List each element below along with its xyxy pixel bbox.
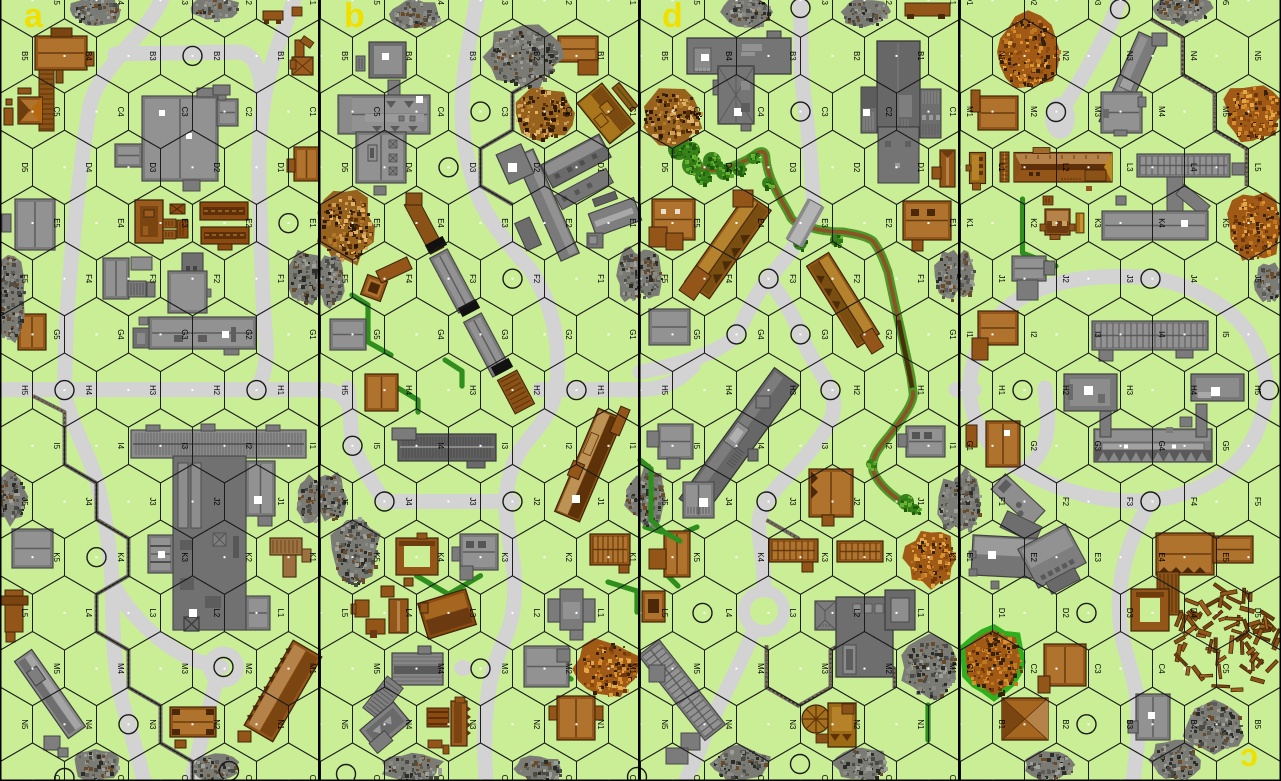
svg-text:M5: M5 (1221, 106, 1230, 117)
svg-text:G2: G2 (564, 329, 573, 339)
svg-text:H3: H3 (1125, 385, 1134, 395)
svg-text:E1: E1 (965, 552, 974, 562)
svg-text:A2: A2 (244, 0, 253, 5)
svg-text:J3: J3 (468, 497, 477, 505)
svg-text:C5: C5 (372, 107, 381, 118)
svg-text:J5: J5 (340, 497, 349, 506)
svg-text:E4: E4 (116, 218, 125, 228)
svg-text:K5: K5 (372, 552, 381, 562)
svg-text:F5: F5 (20, 274, 29, 284)
svg-text:O1: O1 (965, 0, 974, 5)
svg-text:C3: C3 (820, 107, 829, 117)
svg-text:D2: D2 (532, 162, 541, 172)
svg-text:B3: B3 (1125, 720, 1134, 730)
svg-text:D3: D3 (1125, 608, 1134, 618)
svg-text:E3: E3 (820, 218, 829, 228)
svg-text:B3: B3 (148, 51, 157, 61)
svg-text:N3: N3 (148, 719, 157, 729)
svg-text:D1: D1 (596, 162, 605, 172)
svg-text:E4: E4 (436, 218, 445, 228)
svg-text:H1: H1 (276, 385, 285, 395)
svg-text:I4: I4 (116, 443, 125, 450)
svg-text:I3: I3 (1093, 331, 1102, 338)
svg-text:N1: N1 (596, 719, 605, 729)
svg-text:K2: K2 (564, 552, 573, 562)
svg-text:J5: J5 (1253, 275, 1262, 284)
svg-text:C3: C3 (180, 107, 189, 117)
svg-text:K3: K3 (500, 552, 509, 562)
svg-text:E5: E5 (372, 218, 381, 228)
svg-text:F3: F3 (148, 274, 157, 283)
svg-text:E3: E3 (1093, 552, 1102, 562)
svg-text:G5: G5 (1221, 441, 1230, 452)
svg-text:K5: K5 (52, 552, 61, 562)
svg-text:J5: J5 (20, 497, 29, 506)
svg-text:K5: K5 (692, 552, 701, 562)
svg-text:L5: L5 (340, 609, 349, 618)
svg-text:C2: C2 (244, 107, 253, 117)
svg-text:E2: E2 (564, 218, 573, 228)
svg-text:C2: C2 (1029, 664, 1038, 674)
svg-text:L1: L1 (916, 609, 925, 618)
svg-text:B2: B2 (1061, 720, 1070, 730)
svg-text:D2: D2 (212, 162, 221, 172)
svg-text:B2: B2 (532, 51, 541, 61)
svg-text:N1: N1 (916, 719, 925, 729)
svg-text:E4: E4 (756, 218, 765, 228)
svg-text:A1: A1 (628, 0, 637, 5)
svg-text:N5: N5 (1253, 51, 1262, 62)
svg-text:N4: N4 (1189, 51, 1198, 62)
svg-text:M5: M5 (692, 663, 701, 674)
svg-text:L4: L4 (404, 609, 413, 618)
svg-text:H2: H2 (852, 385, 861, 395)
svg-text:F2: F2 (212, 274, 221, 283)
svg-text:B1: B1 (276, 51, 285, 61)
svg-text:K4: K4 (436, 552, 445, 562)
svg-text:D4: D4 (404, 162, 413, 173)
svg-text:M1: M1 (948, 663, 957, 674)
svg-text:d: d (662, 0, 683, 35)
svg-text:M2: M2 (1029, 106, 1038, 117)
svg-text:I1: I1 (628, 443, 637, 450)
svg-text:M5: M5 (52, 663, 61, 674)
svg-text:I1: I1 (948, 443, 957, 450)
svg-text:F1: F1 (596, 274, 605, 283)
svg-text:G5: G5 (372, 329, 381, 340)
svg-text:L2: L2 (1061, 163, 1070, 172)
svg-text:B2: B2 (212, 51, 221, 61)
svg-text:N4: N4 (404, 719, 413, 730)
svg-text:H3: H3 (148, 385, 157, 395)
svg-text:I3: I3 (180, 443, 189, 450)
svg-text:I5: I5 (1221, 331, 1230, 338)
svg-text:H3: H3 (468, 385, 477, 395)
svg-text:H5: H5 (20, 385, 29, 396)
svg-text:L2: L2 (852, 609, 861, 618)
svg-text:L3: L3 (788, 609, 797, 618)
svg-text:J2: J2 (852, 497, 861, 505)
svg-text:L3: L3 (148, 609, 157, 618)
svg-text:D2: D2 (852, 162, 861, 172)
svg-text:F4: F4 (84, 274, 93, 284)
svg-text:G4: G4 (1157, 441, 1166, 452)
svg-text:M1: M1 (308, 663, 317, 674)
svg-text:I1: I1 (308, 443, 317, 450)
svg-text:L3: L3 (468, 609, 477, 618)
svg-text:F5: F5 (1253, 497, 1262, 507)
svg-text:F4: F4 (1189, 497, 1198, 507)
svg-text:L3: L3 (1125, 163, 1134, 172)
svg-text:D4: D4 (1189, 608, 1198, 619)
svg-text:G3: G3 (180, 329, 189, 339)
svg-text:F1: F1 (997, 497, 1006, 506)
svg-text:H4: H4 (724, 385, 733, 396)
svg-text:C4: C4 (1157, 664, 1166, 675)
svg-text:E1: E1 (628, 218, 637, 228)
svg-text:E2: E2 (1029, 552, 1038, 562)
svg-text:D5: D5 (660, 162, 669, 173)
svg-text:K2: K2 (884, 552, 893, 562)
svg-text:N5: N5 (660, 719, 669, 730)
svg-text:O4: O4 (1157, 0, 1166, 6)
svg-text:L4: L4 (724, 609, 733, 618)
svg-text:L1: L1 (596, 609, 605, 618)
svg-text:B4: B4 (84, 51, 93, 61)
svg-text:D1: D1 (276, 162, 285, 172)
svg-text:F2: F2 (532, 274, 541, 283)
svg-text:B1: B1 (997, 720, 1006, 730)
svg-text:M1: M1 (628, 663, 637, 674)
svg-text:G1: G1 (308, 329, 317, 339)
svg-text:E4: E4 (1157, 552, 1166, 562)
svg-text:D3: D3 (468, 162, 477, 172)
svg-text:N1: N1 (997, 51, 1006, 61)
svg-text:C4: C4 (116, 107, 125, 118)
svg-text:N3: N3 (788, 719, 797, 729)
svg-text:N1: N1 (276, 719, 285, 729)
svg-text:M3: M3 (820, 663, 829, 674)
svg-text:E5: E5 (1221, 552, 1230, 562)
svg-text:H5: H5 (340, 385, 349, 396)
svg-text:J1: J1 (997, 275, 1006, 283)
svg-text:a: a (24, 0, 44, 35)
svg-text:H4: H4 (404, 385, 413, 396)
svg-text:K4: K4 (756, 552, 765, 562)
svg-text:J1: J1 (916, 497, 925, 505)
svg-text:H2: H2 (532, 385, 541, 395)
svg-text:L2: L2 (532, 609, 541, 618)
svg-text:D3: D3 (788, 162, 797, 172)
svg-text:I2: I2 (244, 443, 253, 450)
svg-text:J4: J4 (1189, 275, 1198, 284)
svg-text:E3: E3 (500, 218, 509, 228)
svg-text:B5: B5 (1253, 720, 1262, 730)
svg-text:C1: C1 (628, 107, 637, 117)
svg-text:K5: K5 (1221, 218, 1230, 228)
svg-text:E5: E5 (692, 218, 701, 228)
svg-text:I1: I1 (965, 331, 974, 338)
svg-text:H2: H2 (1061, 385, 1070, 395)
svg-text:C5: C5 (1221, 664, 1230, 675)
svg-text:I4: I4 (1157, 331, 1166, 338)
svg-text:M4: M4 (116, 663, 125, 674)
svg-text:E5: E5 (52, 218, 61, 228)
svg-text:E2: E2 (244, 218, 253, 228)
svg-text:F4: F4 (404, 274, 413, 284)
svg-text:C1: C1 (308, 107, 317, 117)
svg-text:G5: G5 (52, 329, 61, 340)
svg-text:A5: A5 (692, 0, 701, 6)
svg-text:O2: O2 (1029, 0, 1038, 5)
svg-text:M3: M3 (500, 663, 509, 674)
svg-text:B2: B2 (852, 51, 861, 61)
svg-text:H3: H3 (788, 385, 797, 395)
svg-text:D2: D2 (1061, 608, 1070, 618)
svg-text:E1: E1 (948, 218, 957, 228)
svg-text:A3: A3 (500, 0, 509, 5)
svg-text:N2: N2 (1061, 51, 1070, 61)
svg-text:F1: F1 (276, 274, 285, 283)
svg-text:L5: L5 (1253, 163, 1262, 172)
svg-text:J2: J2 (212, 497, 221, 505)
svg-text:N2: N2 (852, 719, 861, 729)
svg-text:L4: L4 (1189, 163, 1198, 172)
svg-text:C3: C3 (1093, 664, 1102, 674)
svg-text:K4: K4 (1157, 218, 1166, 228)
svg-text:J3: J3 (1125, 275, 1134, 283)
svg-text:G4: G4 (756, 329, 765, 340)
svg-text:D4: D4 (724, 162, 733, 173)
svg-text:A5: A5 (372, 0, 381, 6)
svg-text:D1: D1 (916, 162, 925, 172)
svg-text:K4: K4 (116, 552, 125, 562)
svg-text:C1: C1 (965, 664, 974, 674)
svg-text:H4: H4 (1189, 385, 1198, 396)
svg-text:C2: C2 (884, 107, 893, 117)
svg-text:K1: K1 (308, 552, 317, 562)
svg-text:D4: D4 (84, 162, 93, 173)
svg-text:H2: H2 (212, 385, 221, 395)
svg-text:I5: I5 (692, 443, 701, 450)
svg-text:N5: N5 (20, 719, 29, 730)
svg-text:G2: G2 (244, 329, 253, 339)
svg-text:K2: K2 (244, 552, 253, 562)
svg-text:G3: G3 (500, 329, 509, 339)
svg-text:L4: L4 (84, 609, 93, 618)
svg-text:C5: C5 (692, 107, 701, 118)
svg-text:F3: F3 (788, 274, 797, 283)
svg-text:A3: A3 (820, 0, 829, 5)
svg-text:F4: F4 (724, 274, 733, 284)
svg-text:A1: A1 (308, 0, 317, 5)
svg-text:F3: F3 (1125, 497, 1134, 506)
svg-text:N4: N4 (84, 719, 93, 730)
svg-text:C1: C1 (948, 107, 957, 117)
svg-text:A3: A3 (180, 0, 189, 5)
svg-text:M2: M2 (244, 663, 253, 674)
svg-text:c: c (1240, 742, 1258, 778)
svg-text:I5: I5 (52, 443, 61, 450)
svg-text:M4: M4 (1157, 106, 1166, 117)
svg-text:b: b (344, 0, 365, 35)
svg-text:O5: O5 (1221, 0, 1230, 6)
svg-text:G1: G1 (628, 329, 637, 339)
svg-text:A5: A5 (52, 0, 61, 6)
svg-text:D1: D1 (997, 608, 1006, 618)
svg-text:G3: G3 (1093, 441, 1102, 451)
svg-text:M5: M5 (372, 663, 381, 674)
svg-text:E3: E3 (180, 218, 189, 228)
svg-text:A2: A2 (884, 0, 893, 5)
svg-text:A4: A4 (116, 0, 125, 6)
svg-text:O3: O3 (1093, 0, 1102, 5)
svg-text:K1: K1 (948, 552, 957, 562)
svg-text:K2: K2 (1029, 218, 1038, 228)
svg-text:H1: H1 (596, 385, 605, 395)
svg-text:L5: L5 (660, 609, 669, 618)
svg-text:K3: K3 (180, 552, 189, 562)
svg-text:L1: L1 (997, 163, 1006, 172)
svg-text:G3: G3 (820, 329, 829, 339)
svg-text:B1: B1 (916, 51, 925, 61)
svg-text:J4: J4 (84, 497, 93, 506)
svg-text:A1: A1 (948, 0, 957, 5)
svg-text:B4: B4 (404, 51, 413, 61)
svg-text:C2: C2 (564, 107, 573, 117)
svg-text:A2: A2 (564, 0, 573, 5)
svg-text:J4: J4 (404, 497, 413, 506)
svg-text:C3: C3 (500, 107, 509, 117)
svg-text:J1: J1 (596, 497, 605, 505)
svg-text:K3: K3 (1093, 218, 1102, 228)
svg-text:I4: I4 (756, 443, 765, 450)
svg-text:G1: G1 (948, 329, 957, 339)
svg-text:H4: H4 (84, 385, 93, 396)
svg-text:B5: B5 (20, 51, 29, 61)
svg-text:N2: N2 (532, 719, 541, 729)
svg-text:A4: A4 (756, 0, 765, 6)
svg-text:I4: I4 (436, 443, 445, 450)
svg-text:G2: G2 (884, 329, 893, 339)
svg-text:J1: J1 (276, 497, 285, 505)
svg-text:B3: B3 (468, 51, 477, 61)
svg-text:M3: M3 (1093, 106, 1102, 117)
svg-text:D5: D5 (340, 162, 349, 173)
svg-text:M4: M4 (436, 663, 445, 674)
svg-text:I2: I2 (1029, 331, 1038, 338)
svg-text:B4: B4 (724, 51, 733, 61)
svg-text:M4: M4 (756, 663, 765, 674)
svg-text:I3: I3 (820, 443, 829, 450)
svg-text:N3: N3 (1125, 51, 1134, 61)
svg-text:K1: K1 (965, 218, 974, 228)
svg-text:F1: F1 (916, 274, 925, 283)
svg-text:I3: I3 (500, 443, 509, 450)
svg-text:F3: F3 (468, 274, 477, 283)
svg-text:F5: F5 (340, 274, 349, 284)
svg-text:H5: H5 (660, 385, 669, 396)
svg-text:H1: H1 (997, 385, 1006, 395)
svg-text:N2: N2 (212, 719, 221, 729)
svg-text:J5: J5 (660, 497, 669, 506)
svg-text:F5: F5 (660, 274, 669, 284)
svg-text:J3: J3 (788, 497, 797, 505)
svg-text:I2: I2 (884, 443, 893, 450)
svg-text:G4: G4 (116, 329, 125, 340)
svg-text:B5: B5 (660, 51, 669, 61)
svg-text:I2: I2 (564, 443, 573, 450)
svg-text:L1: L1 (276, 609, 285, 618)
svg-text:J4: J4 (724, 497, 733, 506)
svg-text:B3: B3 (788, 51, 797, 61)
svg-text:C4: C4 (436, 107, 445, 118)
svg-text:B5: B5 (340, 51, 349, 61)
svg-text:K3: K3 (820, 552, 829, 562)
svg-text:L5: L5 (20, 609, 29, 618)
svg-text:E2: E2 (884, 218, 893, 228)
svg-text:N5: N5 (340, 719, 349, 730)
svg-text:D5: D5 (1253, 608, 1262, 619)
svg-text:K1: K1 (628, 552, 637, 562)
svg-text:I5: I5 (372, 443, 381, 450)
svg-text:F2: F2 (1061, 497, 1070, 506)
svg-text:F2: F2 (852, 274, 861, 283)
svg-text:A4: A4 (436, 0, 445, 6)
svg-text:M2: M2 (884, 663, 893, 674)
svg-text:H1: H1 (916, 385, 925, 395)
svg-text:E1: E1 (308, 218, 317, 228)
svg-text:G2: G2 (1029, 441, 1038, 451)
svg-text:J3: J3 (148, 497, 157, 505)
svg-text:G4: G4 (436, 329, 445, 340)
svg-text:L2: L2 (212, 609, 221, 618)
svg-text:J2: J2 (532, 497, 541, 505)
svg-text:D5: D5 (20, 162, 29, 173)
svg-text:G1: G1 (965, 441, 974, 451)
svg-text:C5: C5 (52, 107, 61, 118)
svg-text:C4: C4 (756, 107, 765, 118)
svg-text:B1: B1 (596, 51, 605, 61)
svg-text:M3: M3 (180, 663, 189, 674)
svg-text:M1: M1 (965, 106, 974, 117)
svg-text:H5: H5 (1253, 385, 1262, 396)
svg-text:G5: G5 (692, 329, 701, 340)
svg-text:D3: D3 (148, 162, 157, 172)
svg-text:B4: B4 (1189, 720, 1198, 730)
svg-text:N4: N4 (724, 719, 733, 730)
svg-text:N3: N3 (468, 719, 477, 729)
svg-text:J2: J2 (1061, 275, 1070, 283)
svg-text:M2: M2 (564, 663, 573, 674)
